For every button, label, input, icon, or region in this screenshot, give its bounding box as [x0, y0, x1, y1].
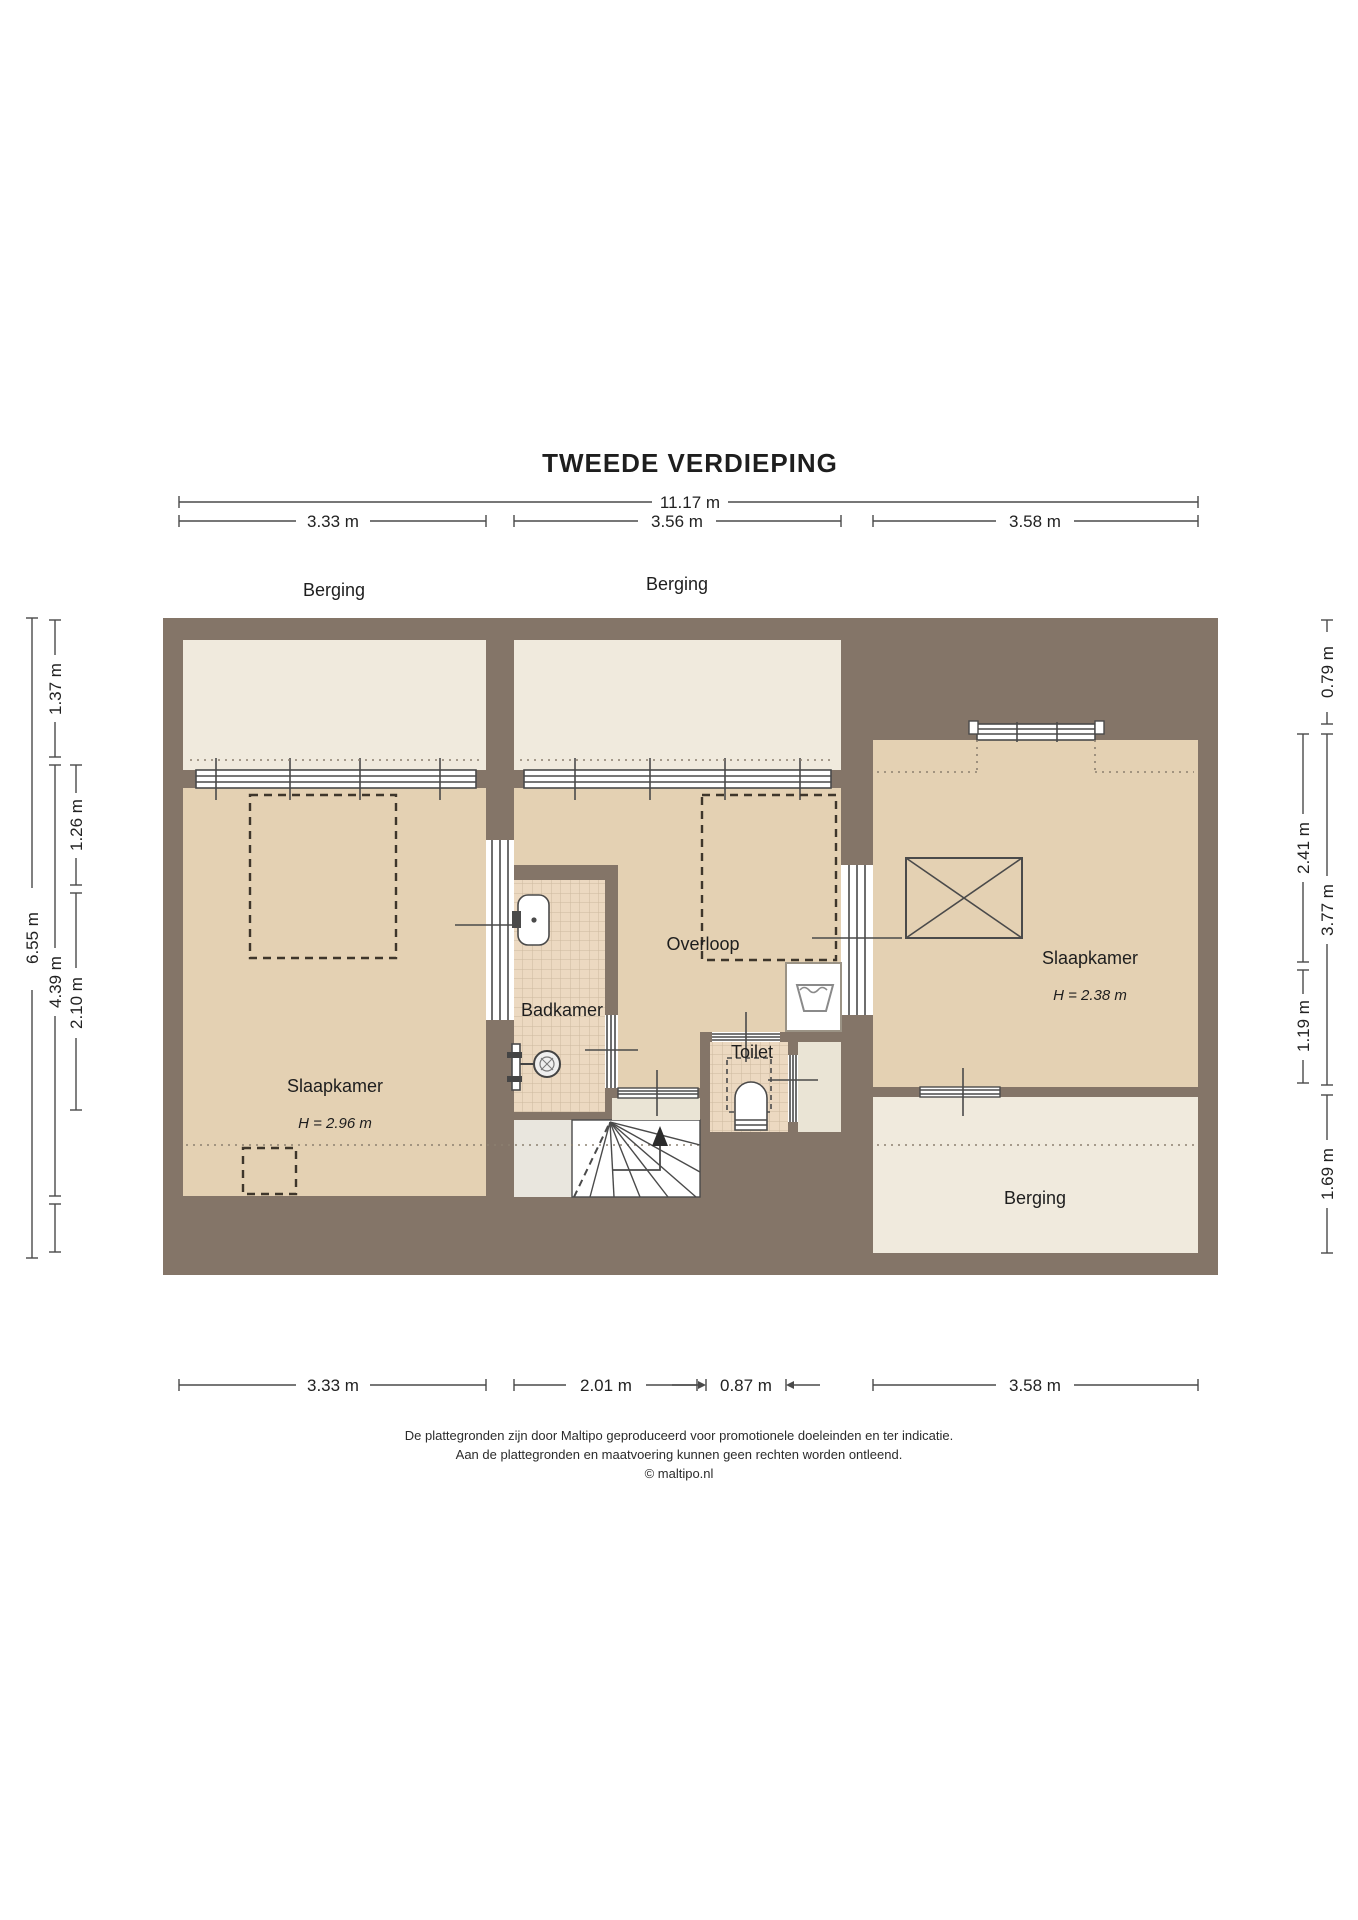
dim-right-3: 3.77 m: [1318, 884, 1337, 936]
floorplan-title: TWEEDE VERDIEPING: [542, 448, 838, 478]
label-badkamer: Badkamer: [521, 1000, 603, 1020]
zone-closet: [798, 1042, 841, 1132]
dim-bottom-1: 3.33 m: [307, 1376, 359, 1395]
dim-top-3: 3.58 m: [1009, 512, 1061, 531]
dim-left-1: 1.37 m: [46, 663, 65, 715]
zone-headroom: [514, 1120, 572, 1197]
dim-right-4: 1.19 m: [1294, 1000, 1313, 1052]
dim-left-3: 4.39 m: [46, 956, 65, 1008]
dim-top-total: 11.17 m: [660, 493, 720, 512]
dim-bottom-3: 0.87 m: [720, 1376, 772, 1395]
label-berging-middle: Berging: [646, 574, 708, 594]
room-overloop-c: [618, 1032, 700, 1088]
room-berging-left: [183, 640, 486, 770]
dim-right-2: 2.41 m: [1294, 822, 1313, 874]
footer: De plattegronden zijn door Maltipo gepro…: [405, 1428, 954, 1481]
washbasin-icon: [512, 895, 549, 945]
dimensions-bottom: 3.33 m 2.01 m 0.87 m 3.58 m: [179, 1376, 1198, 1398]
footer-line-1: De plattegronden zijn door Maltipo gepro…: [405, 1428, 954, 1443]
floorplan-canvas: Berging Berging Slaapkamer H = 2.96 m Ov…: [0, 0, 1358, 1920]
dim-bottom-2: 2.01 m: [580, 1376, 632, 1395]
footer-line-3: © maltipo.nl: [645, 1466, 714, 1481]
dim-left-2: 1.26 m: [67, 799, 86, 851]
footer-line-2: Aan de plattegronden en maatvoering kunn…: [456, 1447, 903, 1462]
label-berging-left: Berging: [303, 580, 365, 600]
dimensions-right: 0.79 m 2.41 m 3.77 m 1.19 m 1.69 m: [1294, 620, 1337, 1253]
label-slaapkamer-left-height: H = 2.96 m: [298, 1115, 372, 1132]
label-toilet: Toilet: [731, 1042, 773, 1062]
dim-left-4: 2.10 m: [67, 977, 86, 1029]
dimensions-top: 11.17 m 3.33 m 3.56 m 3.58 m: [179, 493, 1198, 531]
room-berging-right: [873, 1097, 1198, 1253]
label-berging-right: Berging: [1004, 1188, 1066, 1208]
dim-left-total: 6.55 m: [23, 912, 42, 964]
room-slaapkamer-right: [873, 740, 1198, 1087]
label-slaapkamer-right-height: H = 2.38 m: [1053, 987, 1127, 1004]
label-slaapkamer-left: Slaapkamer: [287, 1076, 383, 1096]
room-berging-middle: [514, 640, 841, 770]
room-slaapkamer-left: [183, 788, 486, 1196]
dim-top-1: 3.33 m: [307, 512, 359, 531]
dim-top-2: 3.56 m: [651, 512, 703, 531]
room-overloop-a: [514, 788, 841, 865]
window-dormer-right: [969, 721, 1104, 742]
zone-landing: [612, 1098, 700, 1120]
dim-bottom-4: 3.58 m: [1009, 1376, 1061, 1395]
dimensions-left: 6.55 m 1.37 m 1.26 m 4.39 m 2.10 m: [23, 618, 86, 1258]
dim-right-1: 0.79 m: [1318, 646, 1337, 698]
label-slaapkamer-right: Slaapkamer: [1042, 948, 1138, 968]
washing-machine-icon: [786, 963, 841, 1031]
label-overloop: Overloop: [666, 934, 739, 954]
dim-right-5: 1.69 m: [1318, 1148, 1337, 1200]
